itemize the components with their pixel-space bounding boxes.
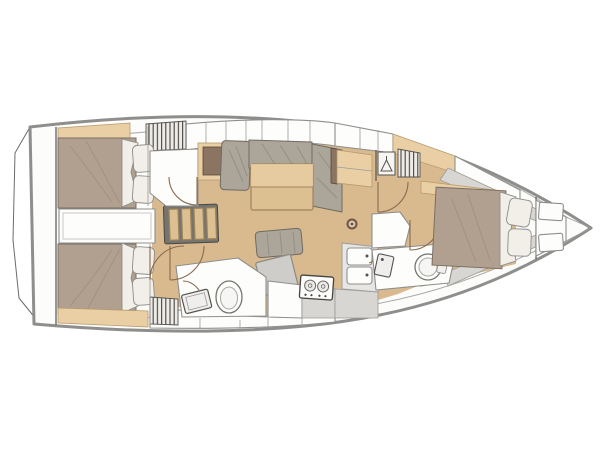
pillow bbox=[508, 229, 532, 257]
step bbox=[169, 209, 179, 240]
hatch-box bbox=[538, 233, 563, 252]
hatch-box bbox=[538, 202, 563, 221]
pillow bbox=[506, 197, 533, 228]
dark-cabinet-top bbox=[203, 147, 222, 175]
engine-compartment bbox=[59, 209, 155, 243]
step bbox=[206, 208, 216, 239]
side-shelf bbox=[337, 150, 372, 187]
step bbox=[181, 209, 191, 240]
shower-seat bbox=[372, 212, 410, 248]
stove bbox=[299, 275, 334, 300]
bench-seat bbox=[255, 228, 303, 258]
hanging-locker bbox=[398, 149, 420, 177]
settee-arm bbox=[331, 148, 337, 184]
step bbox=[194, 208, 204, 239]
yacht-floor-plan bbox=[0, 0, 600, 450]
companionway-steps bbox=[163, 204, 218, 244]
table-leaf bbox=[251, 164, 313, 187]
hanging-locker bbox=[150, 297, 178, 325]
double-bed bbox=[432, 187, 506, 269]
floor-plan-canvas bbox=[0, 0, 600, 450]
hanger-locker bbox=[378, 152, 395, 175]
